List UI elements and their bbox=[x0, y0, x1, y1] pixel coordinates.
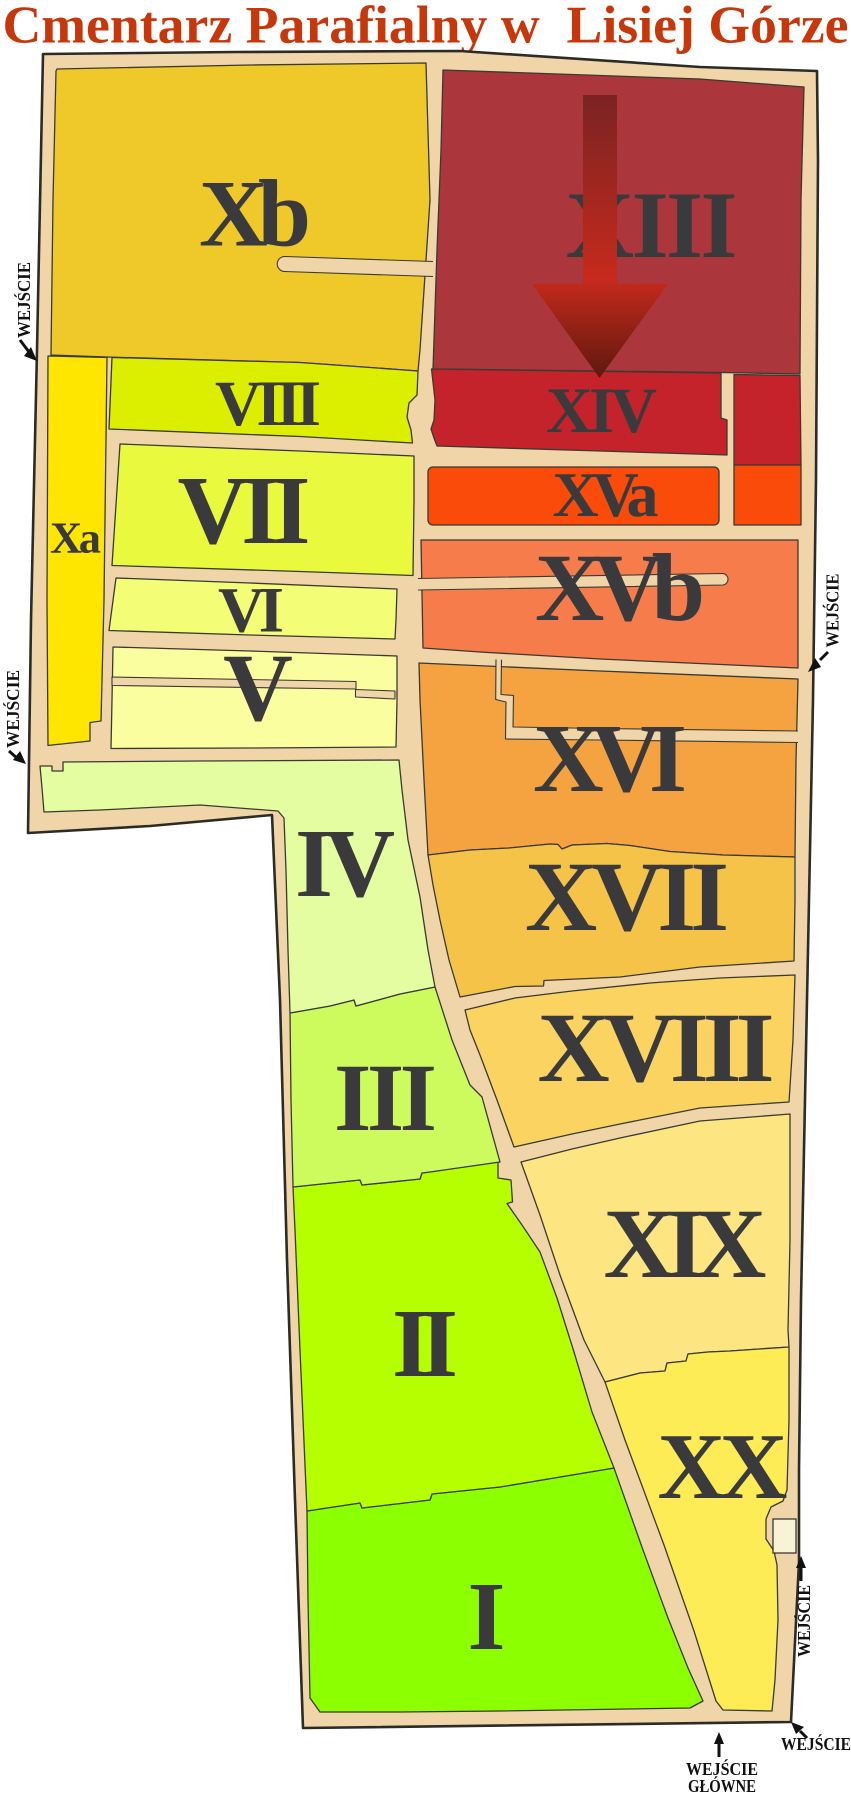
svg-text:IV: IV bbox=[295, 810, 395, 918]
svg-text:GŁÓWNE: GŁÓWNE bbox=[688, 1775, 756, 1794]
svg-text:WEJŚCIE: WEJŚCIE bbox=[13, 262, 34, 338]
svg-text:VIII: VIII bbox=[215, 368, 321, 440]
svg-text:Xa: Xa bbox=[50, 513, 101, 563]
svg-text:XIX: XIX bbox=[604, 1188, 767, 1299]
svg-text:XIV: XIV bbox=[546, 375, 657, 446]
svg-text:WEJŚCIE: WEJŚCIE bbox=[781, 1733, 851, 1754]
svg-text:Xb: Xb bbox=[199, 161, 311, 267]
svg-text:V: V bbox=[223, 634, 293, 741]
svg-text:XVa: XVa bbox=[553, 459, 659, 530]
svg-text:WEJŚCIE: WEJŚCIE bbox=[793, 1585, 814, 1657]
svg-text:VII: VII bbox=[178, 457, 311, 565]
svg-text:Cmentarz Parafialny w Lisiej: Cmentarz Parafialny w Lisiej Górze bbox=[3, 0, 849, 55]
svg-text:I: I bbox=[468, 1563, 506, 1671]
svg-text:XVII: XVII bbox=[525, 841, 729, 952]
svg-text:XVIII: XVIII bbox=[538, 992, 775, 1103]
svg-text:XVI: XVI bbox=[533, 705, 687, 813]
svg-text:WEJŚCIE: WEJŚCIE bbox=[822, 574, 843, 648]
svg-text:XX: XX bbox=[658, 1415, 788, 1519]
svg-text:II: II bbox=[392, 1290, 458, 1398]
svg-text:WEJŚCIE: WEJŚCIE bbox=[2, 670, 23, 748]
svg-text:III: III bbox=[334, 1044, 437, 1151]
svg-text:XVb: XVb bbox=[535, 534, 705, 641]
